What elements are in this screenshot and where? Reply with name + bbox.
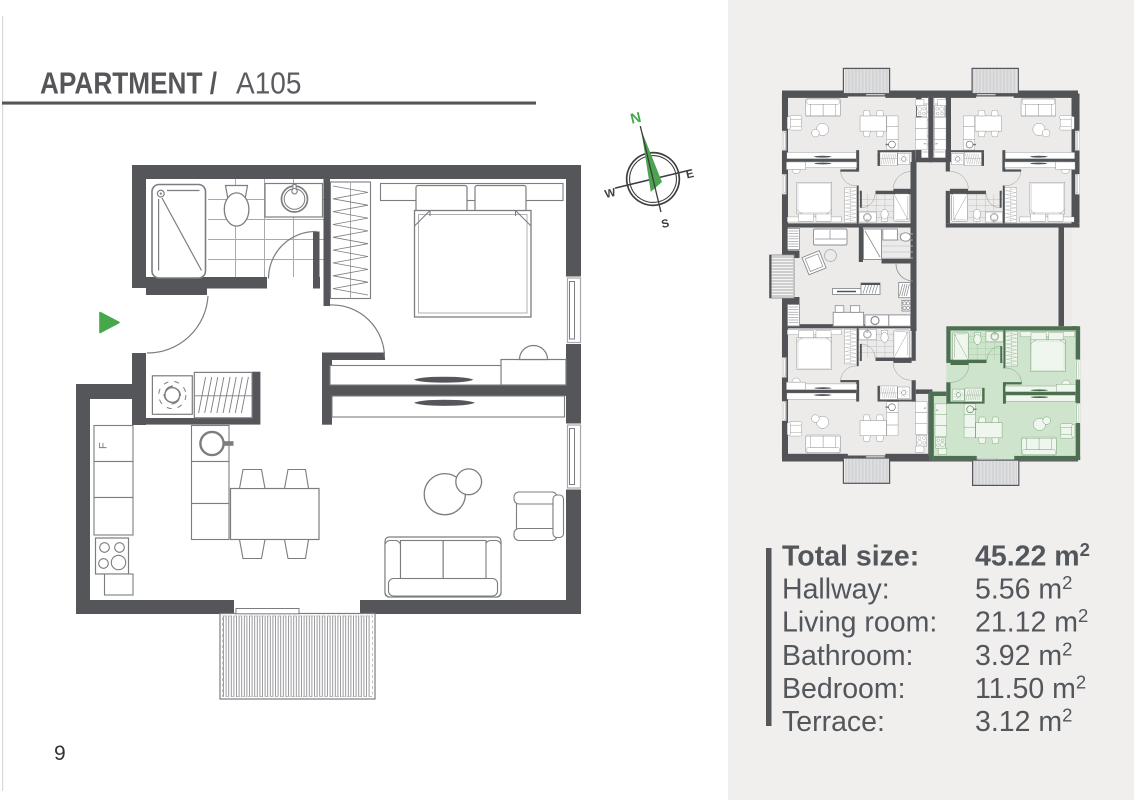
svg-text:Terrace:: Terrace:	[782, 706, 885, 738]
svg-text:11.50 m2: 11.50 m2	[975, 671, 1086, 705]
svg-text:9: 9	[54, 742, 66, 765]
svg-text:45.22 m2: 45.22 m2	[975, 539, 1090, 573]
svg-text:3.92 m2: 3.92 m2	[975, 638, 1072, 672]
svg-text:APARTMENT /: APARTMENT /	[40, 67, 217, 101]
svg-text:5.56 m2: 5.56 m2	[975, 572, 1072, 606]
svg-text:Total size:: Total size:	[782, 541, 919, 573]
svg-text:Bedroom:: Bedroom:	[782, 673, 906, 705]
svg-text:3.12 m2: 3.12 m2	[975, 705, 1072, 739]
svg-text:Hallway:: Hallway:	[782, 574, 890, 606]
svg-text:Living room:: Living room:	[782, 607, 937, 639]
svg-text:Bathroom:: Bathroom:	[782, 640, 913, 672]
svg-text:A105: A105	[236, 67, 302, 101]
svg-text:21.12 m2: 21.12 m2	[975, 605, 1088, 639]
